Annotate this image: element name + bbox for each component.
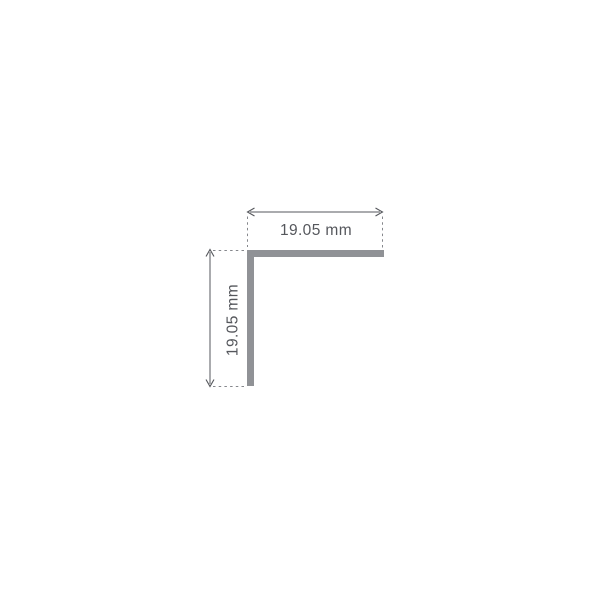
vertical-dimension — [206, 250, 214, 387]
angle-profile-dimension-drawing: 19.05 mm 19.05 mm — [0, 0, 600, 600]
drawing-canvas: 19.05 mm 19.05 mm — [0, 0, 600, 600]
vertical-dimension-label: 19.05 mm — [225, 284, 242, 356]
horizontal-dimension-label: 19.05 mm — [280, 222, 352, 239]
l-profile-shape — [247, 250, 384, 386]
horizontal-dimension — [248, 208, 383, 216]
